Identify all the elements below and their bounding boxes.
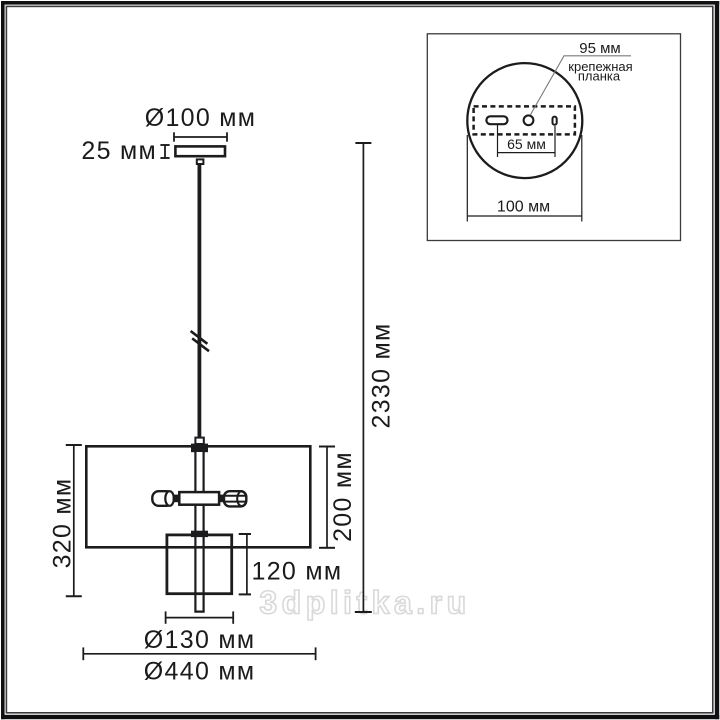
svg-text:25 мм: 25 мм bbox=[81, 137, 157, 165]
svg-text:Ø100 мм: Ø100 мм bbox=[145, 104, 257, 132]
svg-text:2330 мм: 2330 мм bbox=[368, 322, 396, 428]
svg-text:120 мм: 120 мм bbox=[252, 557, 343, 585]
svg-text:95 мм: 95 мм bbox=[579, 40, 620, 57]
svg-text:65 мм: 65 мм bbox=[507, 136, 546, 152]
svg-text:100 мм: 100 мм bbox=[497, 198, 550, 215]
svg-text:Ø440 мм: Ø440 мм bbox=[144, 657, 256, 685]
svg-text:200 мм: 200 мм bbox=[329, 451, 357, 542]
svg-text:320 мм: 320 мм bbox=[49, 478, 77, 569]
svg-text:3dplitka.ru: 3dplitka.ru bbox=[259, 585, 470, 621]
svg-text:планка: планка bbox=[578, 69, 621, 84]
svg-text:Ø130 мм: Ø130 мм bbox=[144, 626, 256, 654]
